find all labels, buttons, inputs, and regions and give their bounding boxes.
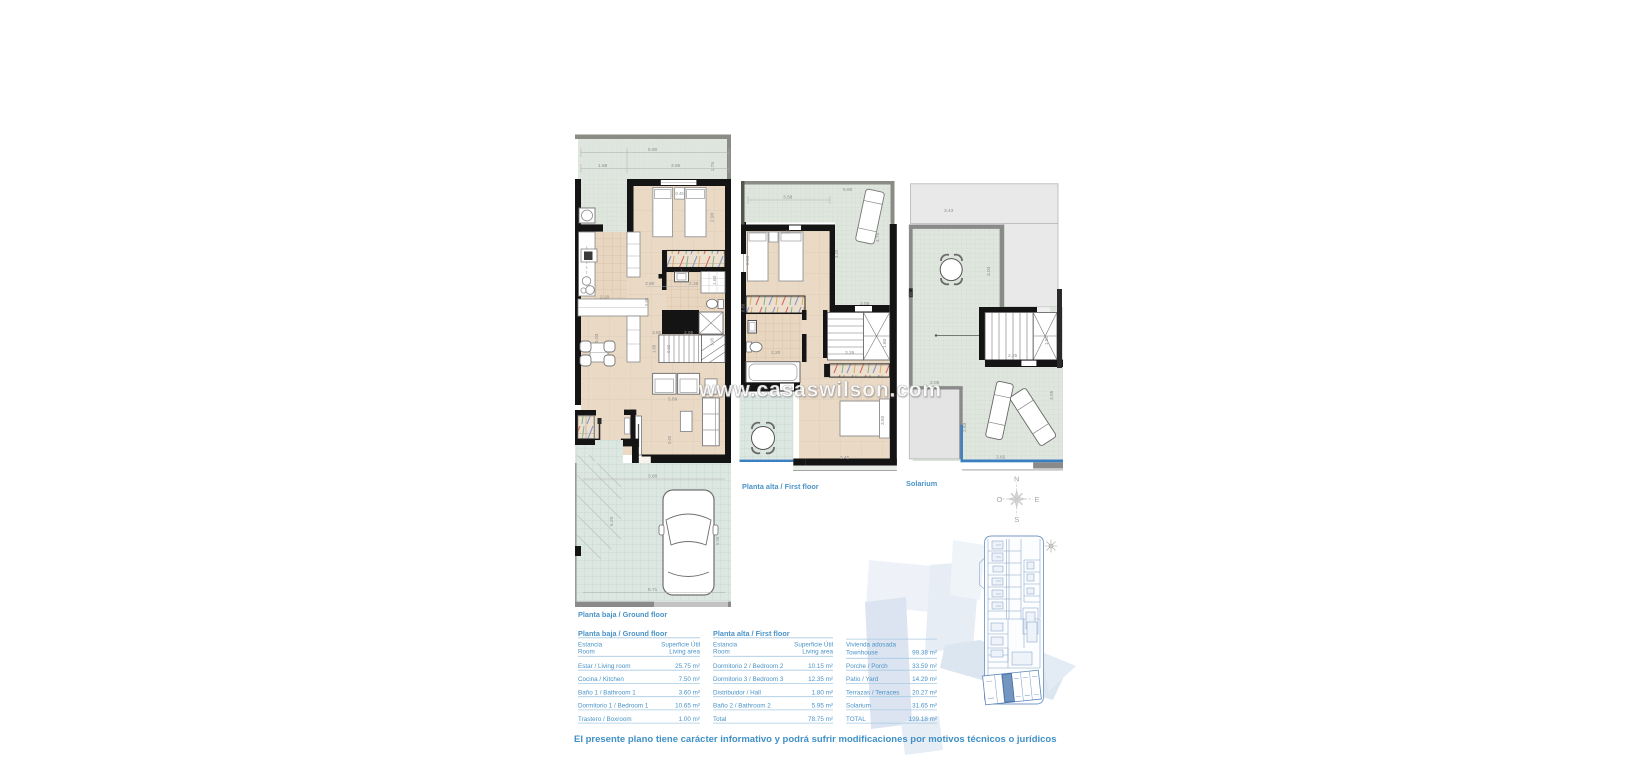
svg-text:3.26: 3.26 (845, 350, 855, 356)
svg-text:5.08: 5.08 (715, 536, 720, 545)
svg-text:199.18 m²: 199.18 m² (909, 716, 937, 723)
svg-text:1.60: 1.60 (712, 275, 718, 285)
svg-text:Terrazas / Terraces: Terrazas / Terraces (846, 689, 899, 696)
svg-text:Planta baja / Ground floor: Planta baja / Ground floor (578, 610, 667, 619)
svg-text:1.28: 1.28 (781, 230, 791, 236)
svg-text:4.75: 4.75 (875, 232, 881, 242)
svg-text:1.90: 1.90 (1044, 335, 1050, 345)
svg-text:5.95 m²: 5.95 m² (812, 703, 833, 710)
svg-text:31.65 m²: 31.65 m² (912, 703, 937, 710)
svg-text:2.20: 2.20 (600, 295, 610, 301)
svg-text:Baño 2 / Bathroom 2: Baño 2 / Bathroom 2 (713, 703, 771, 710)
svg-text:3.60 m²: 3.60 m² (679, 689, 700, 696)
svg-text:Total: Total (713, 716, 726, 723)
svg-text:TOTAL: TOTAL (846, 716, 866, 723)
svg-text:6.92: 6.92 (908, 291, 913, 300)
svg-text:Superficie Útil: Superficie Útil (794, 640, 833, 649)
svg-text:5.71: 5.71 (648, 587, 658, 593)
svg-text:2.95: 2.95 (684, 330, 694, 336)
svg-text:3.60: 3.60 (667, 435, 672, 444)
svg-text:0.92: 0.92 (666, 344, 671, 353)
svg-text:Dormitorio 1 / Bedroom 1: Dormitorio 1 / Bedroom 1 (578, 703, 649, 710)
svg-text:Planta alta / First floor: Planta alta / First floor (713, 629, 790, 638)
svg-text:5.60: 5.60 (843, 187, 853, 193)
svg-text:Solarium: Solarium (846, 703, 871, 710)
svg-text:Estancia: Estancia (578, 642, 603, 649)
svg-text:Solarium: Solarium (906, 479, 938, 488)
svg-text:Living area: Living area (802, 649, 833, 656)
svg-text:2.35: 2.35 (689, 281, 699, 287)
svg-text:Superficie Útil: Superficie Útil (661, 640, 700, 649)
svg-text:5.80: 5.80 (648, 147, 658, 153)
svg-text:2.25: 2.25 (1008, 353, 1018, 359)
svg-text:20.27 m²: 20.27 m² (912, 689, 937, 696)
svg-text:Dormitorio 2 / Bedroom 2: Dormitorio 2 / Bedroom 2 (713, 663, 784, 670)
svg-text:1.95: 1.95 (710, 337, 715, 346)
svg-text:10.65 m²: 10.65 m² (675, 703, 700, 710)
svg-text:6.03: 6.03 (594, 333, 600, 343)
svg-text:1.88: 1.88 (652, 344, 657, 353)
svg-text:0.80: 0.80 (741, 303, 746, 312)
svg-text:El presente plano tiene caráct: El presente plano tiene carácter informa… (574, 734, 1057, 745)
svg-text:Distribuidor / Hall: Distribuidor / Hall (713, 689, 761, 696)
svg-text:Townhouse: Townhouse (846, 650, 878, 657)
svg-text:3.95: 3.95 (671, 163, 681, 169)
svg-text:3.60: 3.60 (880, 415, 886, 425)
svg-text:3.03: 3.03 (986, 266, 992, 276)
svg-text:3.43: 3.43 (944, 208, 954, 214)
svg-text:Cocina / Kitchen: Cocina / Kitchen (578, 676, 624, 683)
svg-text:Planta baja / Ground floor: Planta baja / Ground floor (578, 629, 667, 638)
svg-text:Porche / Porch: Porche / Porch (846, 663, 888, 670)
svg-text:Estar / Living room: Estar / Living room (578, 663, 631, 670)
svg-text:2.20: 2.20 (771, 350, 781, 356)
svg-text:1.80 m²: 1.80 m² (812, 689, 833, 696)
svg-text:1.75: 1.75 (710, 162, 716, 172)
svg-text:78.75 m²: 78.75 m² (808, 716, 833, 723)
svg-text:2.90: 2.90 (710, 212, 716, 222)
svg-text:3.65: 3.65 (996, 455, 1006, 461)
svg-text:Patio / Yard: Patio / Yard (846, 676, 879, 683)
svg-text:12.35 m²: 12.35 m² (808, 676, 833, 683)
svg-text:Room: Room (578, 649, 595, 656)
svg-text:N: N (1014, 475, 1019, 484)
svg-text:3.45: 3.45 (840, 455, 850, 461)
svg-text:3.05: 3.05 (1049, 390, 1055, 400)
svg-text:Vivienda adosada: Vivienda adosada (846, 642, 896, 649)
svg-text:Estancia: Estancia (713, 642, 738, 649)
svg-text:0.80: 0.80 (644, 297, 649, 306)
svg-text:1.80: 1.80 (882, 338, 888, 348)
svg-text:Baño 1 / Bathroom 1: Baño 1 / Bathroom 1 (578, 689, 636, 696)
svg-text:3.90: 3.90 (645, 281, 655, 287)
svg-text:7.50 m²: 7.50 m² (679, 676, 700, 683)
svg-text:5.69: 5.69 (668, 397, 678, 403)
svg-text:S: S (1014, 515, 1019, 524)
svg-text:Trastero / Boxroom: Trastero / Boxroom (578, 716, 632, 723)
svg-text:3.80: 3.80 (648, 474, 658, 480)
svg-text:10.15 m²: 10.15 m² (808, 663, 833, 670)
svg-text:3.58: 3.58 (783, 195, 793, 201)
svg-text:25.75 m²: 25.75 m² (675, 663, 700, 670)
svg-text:2.83: 2.83 (962, 422, 968, 432)
svg-text:Dormitorio 3 / Bedroom 3: Dormitorio 3 / Bedroom 3 (713, 676, 784, 683)
svg-text:6.20: 6.20 (609, 516, 615, 526)
svg-text:99.38 m²: 99.38 m² (912, 650, 937, 657)
svg-text:www.casaswilson.com: www.casaswilson.com (698, 379, 942, 402)
svg-text:1.00 m²: 1.00 m² (679, 716, 700, 723)
svg-text:O: O (997, 495, 1003, 504)
svg-text:1.88: 1.88 (598, 163, 608, 169)
svg-text:Living area: Living area (669, 649, 700, 656)
svg-text:0.45: 0.45 (676, 191, 685, 196)
svg-text:E: E (1035, 495, 1040, 504)
svg-text:2.05: 2.05 (860, 301, 870, 307)
svg-text:2.50: 2.50 (745, 255, 751, 265)
svg-text:Room: Room (713, 649, 730, 656)
svg-text:33.59 m²: 33.59 m² (912, 663, 937, 670)
svg-text:3.80: 3.80 (652, 330, 662, 336)
svg-text:14.29 m²: 14.29 m² (912, 676, 937, 683)
svg-text:3.20: 3.20 (834, 249, 839, 258)
svg-text:Planta alta / First floor: Planta alta / First floor (742, 482, 819, 491)
